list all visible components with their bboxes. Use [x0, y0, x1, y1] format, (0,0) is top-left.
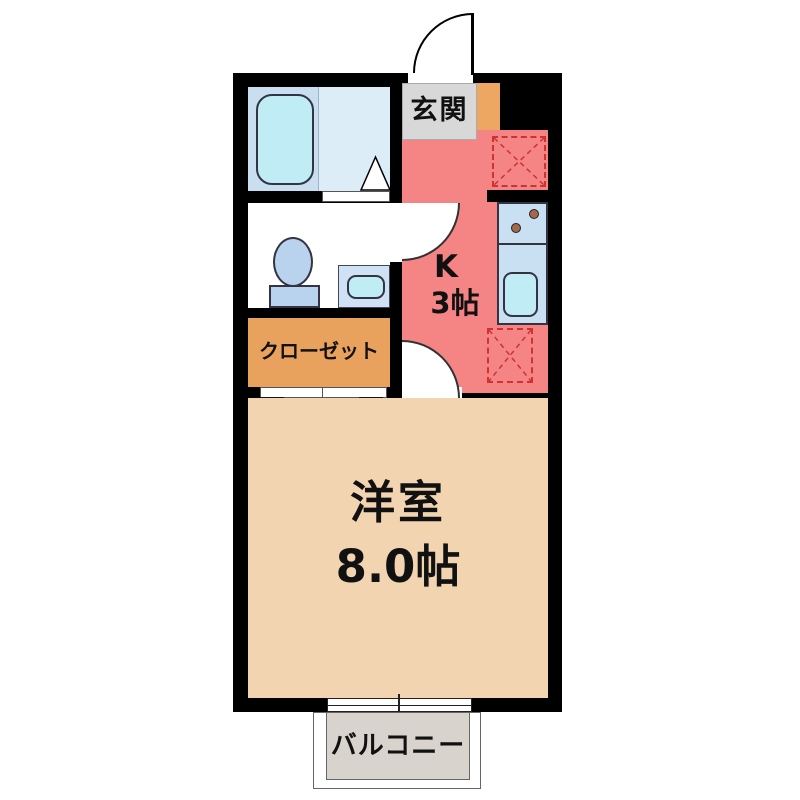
kitchen-size-label: 3帖	[402, 289, 508, 318]
entrance-door-leaf	[471, 13, 474, 75]
main-room-size-label: 8.0帖	[248, 544, 548, 589]
toilet-icon	[273, 237, 313, 287]
bathroom-door-triangle-icon	[358, 155, 394, 192]
balcony-label: バルコニー	[326, 733, 470, 759]
counter-divider	[499, 243, 546, 245]
toilet-sink-basin	[347, 275, 385, 299]
toilet-door-opening	[390, 203, 402, 262]
main-room-label: 洋室	[248, 480, 548, 525]
stove-burner-icon	[511, 223, 521, 233]
entrance-door-arc-icon	[413, 13, 473, 73]
closet-label: クローゼット	[248, 341, 390, 361]
bathtub-icon	[256, 94, 314, 185]
bathroom-door-opening	[322, 191, 390, 202]
shoe-cabinet	[477, 83, 500, 130]
kitchen-sink-icon	[503, 272, 538, 317]
stove-burner-icon	[529, 209, 539, 219]
appliance-space-dashed-icon	[487, 328, 533, 383]
kitchen-wall-stub	[487, 190, 548, 202]
appliance-space-dashed-icon	[492, 136, 546, 187]
toilet-tank	[269, 285, 320, 308]
entrance-opening	[408, 73, 473, 83]
floorplan-canvas: クローゼット 玄関 K 3帖 洋室 8.	[0, 0, 800, 800]
closet-door-divider	[322, 388, 323, 397]
entrance-label: 玄関	[402, 97, 477, 124]
